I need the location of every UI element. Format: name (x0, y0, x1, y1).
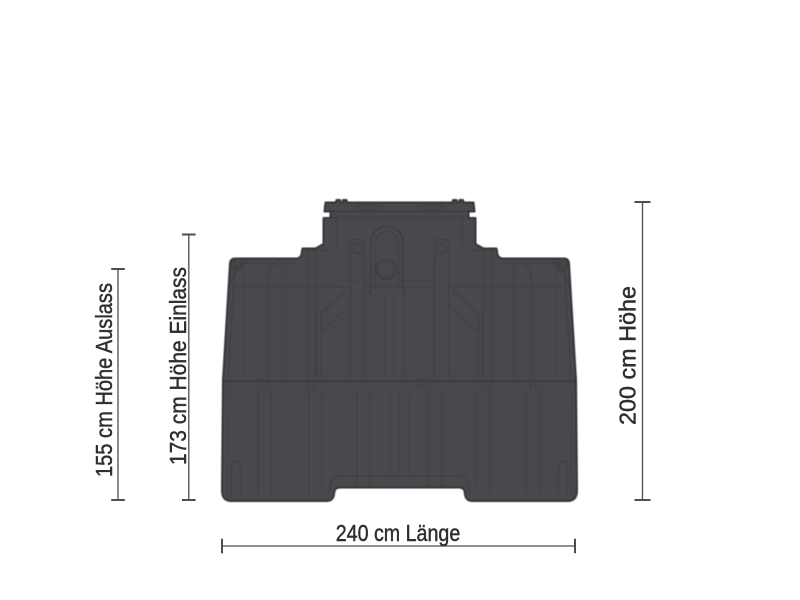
svg-text:240 cm Länge: 240 cm Länge (336, 520, 461, 546)
svg-text:155 cm Höhe Auslass: 155 cm Höhe Auslass (91, 283, 117, 477)
svg-text:173 cm Höhe Einlass: 173 cm Höhe Einlass (165, 267, 191, 465)
svg-text:200 cm Höhe: 200 cm Höhe (615, 286, 641, 425)
